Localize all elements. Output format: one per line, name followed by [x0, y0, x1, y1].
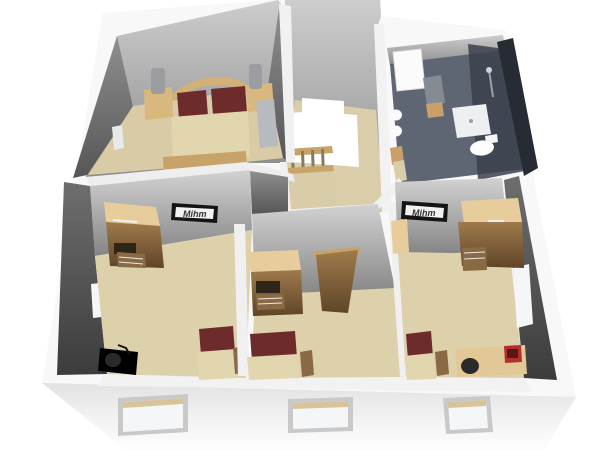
svg-text:Mihm: Mihm	[412, 208, 436, 218]
svg-text:Mihm: Mihm	[183, 209, 207, 219]
